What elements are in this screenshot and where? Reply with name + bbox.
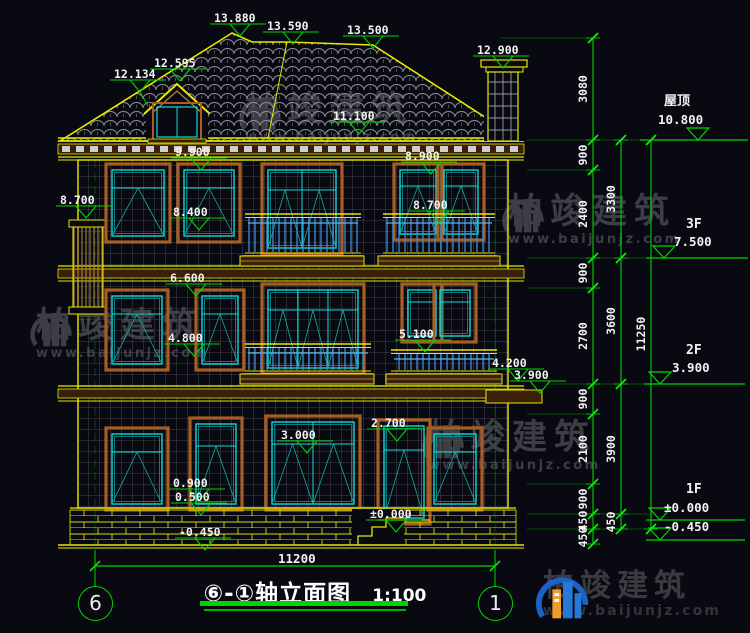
roof [58,33,524,141]
left-pilaster [69,220,107,314]
title-underline-thin [204,609,406,611]
cad-elevation-canvas: 柏竣建筑 www.baijunjz.com 柏竣建筑 www.baijunjz.… [0,0,750,633]
building-logo-icon [533,570,591,628]
elevation-drawing [0,0,750,633]
plinth-base [58,508,524,548]
axis-bubble-1: 1 [478,586,513,621]
axis-bubble-6: 6 [78,586,113,621]
brand-logo-block: 柏竣建筑 www.baijunjz.com [533,570,721,619]
cornice-band [58,144,524,160]
title-underline-thick [200,601,408,606]
chimney [481,60,527,141]
